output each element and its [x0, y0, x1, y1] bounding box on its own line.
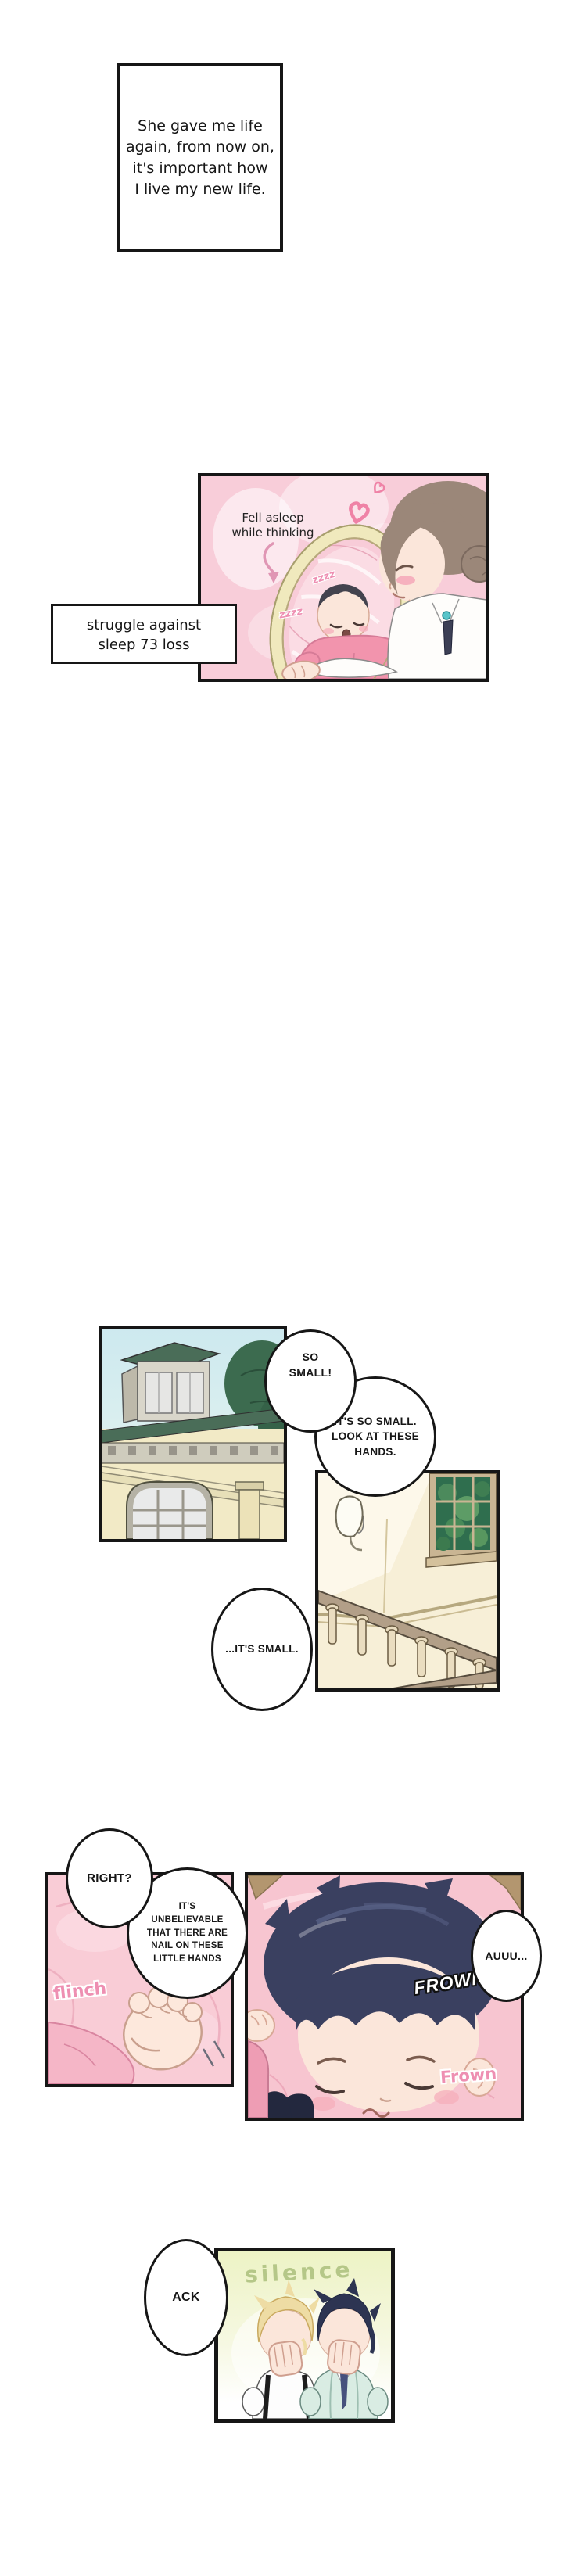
side-note-line: sleep 73 loss — [53, 635, 235, 655]
bubble-line: RIGHT? — [87, 1870, 132, 1887]
interior-art — [318, 1473, 497, 1688]
bubble-line: ...IT'S SMALL. — [225, 1641, 299, 1657]
dormer — [122, 1343, 219, 1423]
interior-panel — [315, 1470, 500, 1692]
building-panel — [99, 1326, 287, 1542]
narration-line: it's important how — [120, 158, 280, 179]
arched-window — [127, 1482, 213, 1539]
bubble-line: AUUU... — [485, 1948, 527, 1964]
bubble-line: ACK — [172, 2288, 200, 2306]
window — [426, 1473, 497, 1567]
building-art — [102, 1329, 284, 1539]
comic-page: She gave me life again, from now on, it'… — [0, 0, 563, 2576]
nursery-art — [201, 476, 486, 679]
narration-line: again, from now on, — [120, 137, 280, 158]
narration-line: She gave me life — [120, 116, 280, 137]
baby-face-panel: FROWN Frown — [245, 1872, 524, 2121]
side-note-line: struggle against — [53, 615, 235, 635]
speech-bubble-ack: ACK — [144, 2239, 228, 2356]
speech-bubble-its-small: ...IT'S SMALL. — [211, 1588, 313, 1711]
cornice-dentils — [108, 1446, 278, 1455]
nursery-panel: Fell asleep while thinking zzzz zzzz — [198, 473, 489, 682]
bubble-line: LOOK AT THESE — [332, 1429, 419, 1444]
speech-bubble-right: RIGHT? — [66, 1828, 153, 1928]
speech-bubble-auuu: AUUU... — [471, 1910, 542, 2002]
bubble-line: SO — [303, 1349, 319, 1365]
narration-line: I live my new life. — [120, 179, 280, 200]
bubble-line: LITTLE HANDS — [153, 1953, 221, 1966]
bubble-line: THAT THERE ARE — [147, 1927, 228, 1940]
nursery-caption: Fell asleep while thinking — [218, 511, 328, 540]
bubble-line: HANDS. — [354, 1444, 396, 1460]
bubble-line: NAIL ON THESE — [151, 1939, 224, 1953]
narration-box: She gave me life again, from now on, it'… — [117, 63, 283, 252]
bubble-line: IT'S SO SMALL. — [334, 1414, 417, 1430]
sfx-frown-small: Frown — [439, 2065, 497, 2087]
side-note-box: struggle against sleep 73 loss — [51, 604, 237, 664]
bubble-line: IT'S — [179, 1900, 196, 1914]
bubble-line: UNBELIEVABLE — [151, 1914, 223, 1927]
bubble-line: SMALL! — [289, 1365, 332, 1380]
speech-bubble-so-small: SO SMALL! — [264, 1329, 357, 1433]
pillar — [235, 1482, 264, 1539]
nursery-caption-line: Fell asleep — [218, 511, 328, 526]
nursery-caption-line: while thinking — [218, 526, 328, 540]
silence-panel: silence — [214, 2248, 395, 2423]
